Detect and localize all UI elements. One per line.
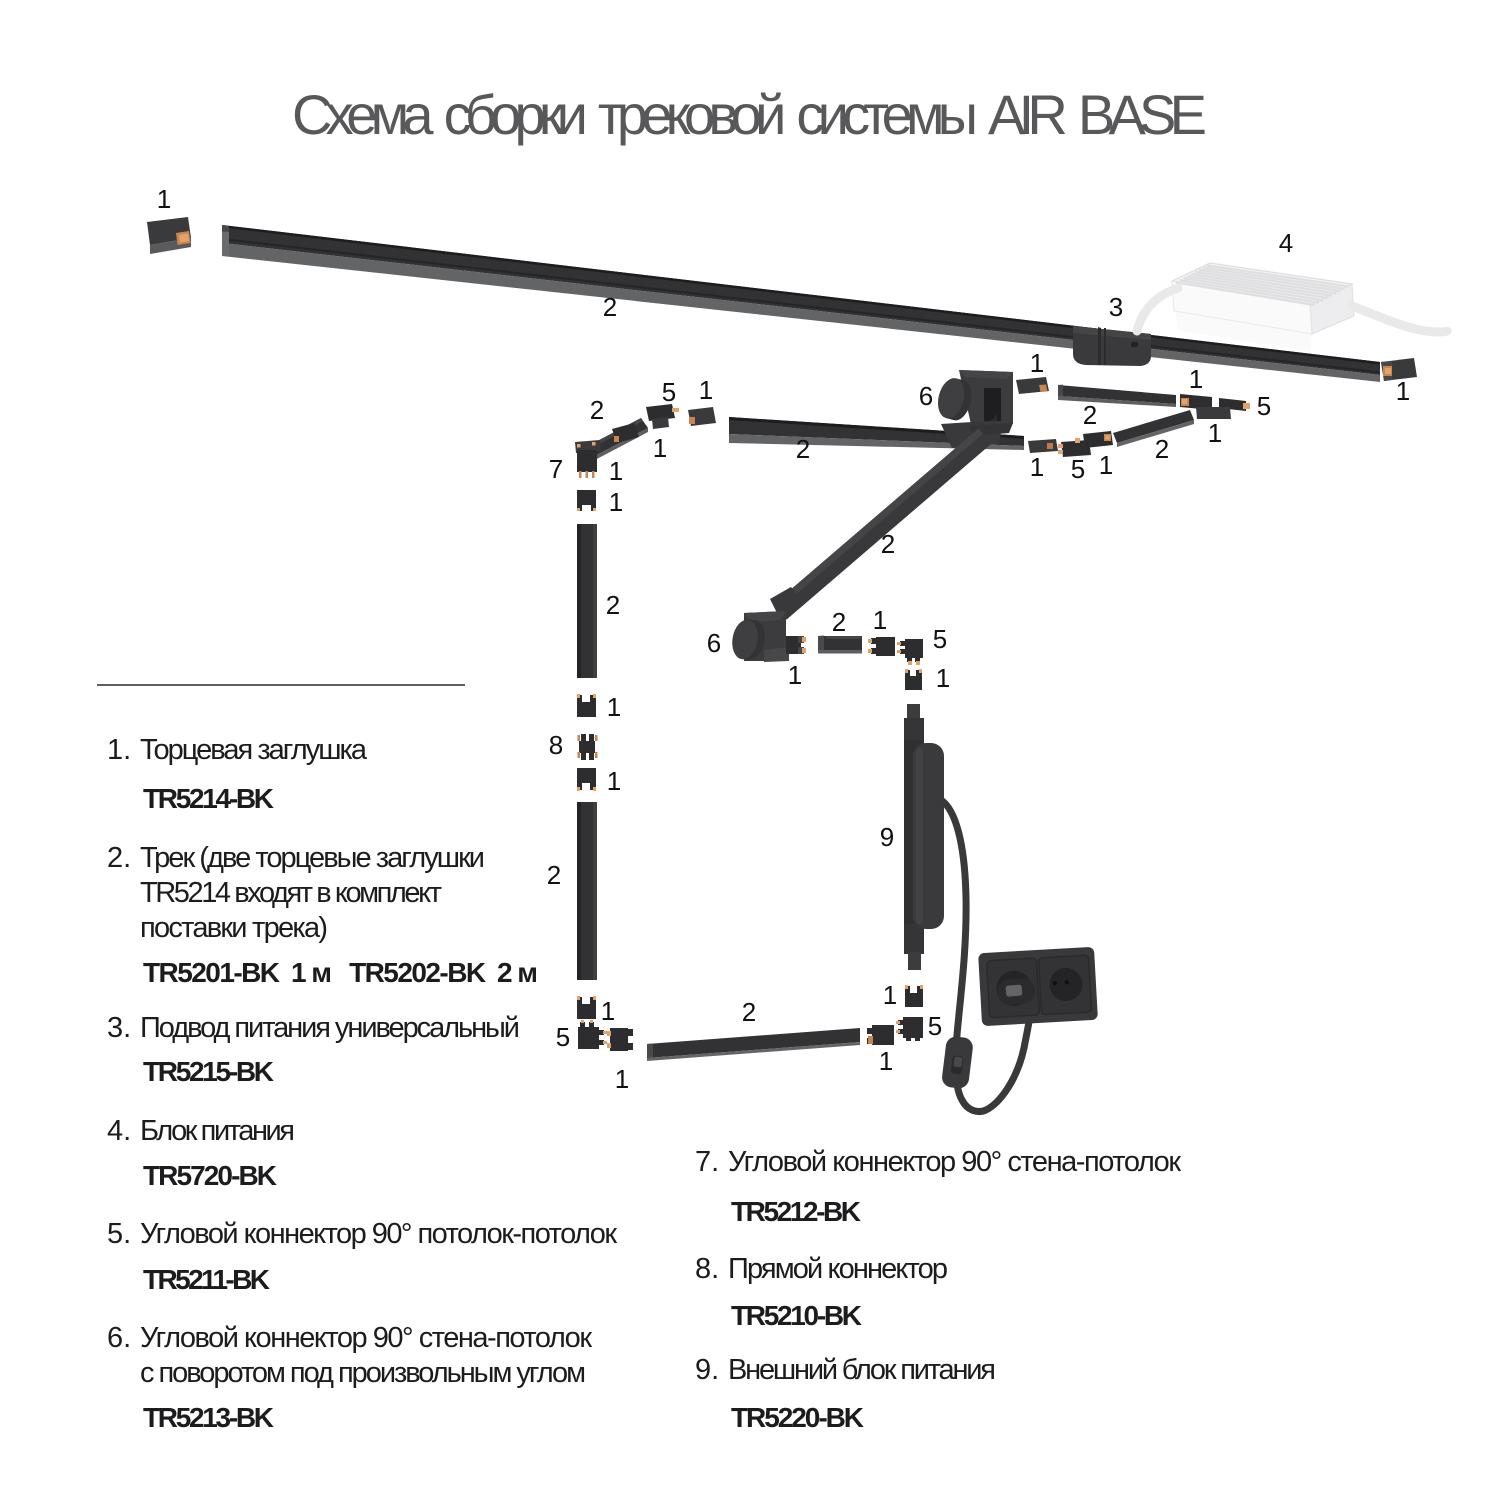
svg-text:2: 2	[603, 292, 617, 322]
svg-text:1: 1	[1099, 450, 1113, 480]
svg-text:Угловой коннектор 90° стена-по: Угловой коннектор 90° стена-потолок	[728, 1146, 1181, 1178]
svg-text:3: 3	[1109, 292, 1123, 322]
svg-text:1: 1	[873, 605, 887, 635]
svg-text:4: 4	[1279, 228, 1293, 258]
svg-text:6.: 6.	[107, 1322, 131, 1354]
svg-text:1: 1	[879, 1046, 893, 1076]
svg-text:TR5210-BK: TR5210-BK	[731, 1300, 862, 1331]
svg-text:5: 5	[556, 1022, 570, 1052]
svg-text:1: 1	[607, 766, 621, 796]
svg-text:1: 1	[1396, 376, 1410, 406]
svg-text:5: 5	[928, 1011, 942, 1041]
svg-text:1: 1	[615, 1064, 629, 1094]
svg-text:Подвод питания универсальный: Подвод питания универсальный	[140, 1012, 520, 1044]
svg-text:с поворотом под произвольным у: с поворотом под произвольным углом	[140, 1357, 586, 1389]
svg-text:TR5201-BK 1 м TR5202-BK 2: TR5201-BK 1 м TR5202-BK 2 м	[143, 957, 538, 988]
svg-text:Прямой коннектор: Прямой коннектор	[728, 1253, 948, 1285]
svg-text:TR5720-BK: TR5720-BK	[143, 1160, 277, 1191]
svg-text:TR5220-BK: TR5220-BK	[731, 1402, 864, 1433]
svg-text:1: 1	[936, 663, 950, 693]
svg-text:TR5212-BK: TR5212-BK	[731, 1196, 861, 1227]
svg-text:Блок питания: Блок питания	[140, 1115, 295, 1147]
svg-text:2: 2	[832, 607, 846, 637]
svg-text:1: 1	[883, 980, 897, 1010]
svg-text:1: 1	[609, 456, 623, 486]
svg-text:1: 1	[157, 184, 171, 214]
svg-text:Торцевая заглушка: Торцевая заглушка	[140, 734, 368, 766]
svg-text:2: 2	[590, 395, 604, 425]
svg-text:2: 2	[796, 434, 810, 464]
svg-text:4.: 4.	[107, 1115, 131, 1147]
svg-text:поставки трека): поставки трека)	[140, 912, 328, 944]
svg-text:5: 5	[933, 624, 947, 654]
svg-text:2: 2	[547, 860, 561, 890]
svg-text:2: 2	[1155, 434, 1169, 464]
svg-text:TR5214 входят в комплект: TR5214 входят в комплект	[140, 877, 442, 909]
svg-text:2.: 2.	[107, 842, 131, 874]
svg-text:1: 1	[653, 433, 667, 463]
svg-text:1: 1	[788, 660, 802, 690]
svg-text:1: 1	[1208, 418, 1222, 448]
svg-text:6: 6	[919, 381, 933, 411]
svg-text:6: 6	[707, 628, 721, 658]
svg-text:1: 1	[1030, 452, 1044, 482]
svg-text:Угловой коннектор 90° потолок-: Угловой коннектор 90° потолок-потолок	[140, 1218, 617, 1250]
svg-text:1: 1	[1189, 364, 1203, 394]
svg-text:2: 2	[881, 529, 895, 559]
svg-text:1: 1	[1030, 348, 1044, 378]
svg-text:8: 8	[549, 730, 563, 760]
svg-text:5: 5	[1257, 391, 1271, 421]
svg-text:2: 2	[742, 997, 756, 1027]
svg-text:1: 1	[607, 692, 621, 722]
svg-text:1: 1	[601, 996, 615, 1026]
svg-text:TR5213-BK: TR5213-BK	[143, 1402, 274, 1433]
svg-text:TR5214-BK: TR5214-BK	[143, 783, 274, 814]
svg-text:3.: 3.	[107, 1012, 131, 1044]
svg-text:9.: 9.	[695, 1354, 719, 1386]
svg-text:Угловой коннектор 90° стена-по: Угловой коннектор 90° стена-потолок	[140, 1322, 592, 1354]
svg-text:5: 5	[1071, 454, 1085, 484]
svg-text:5: 5	[662, 377, 676, 407]
svg-text:1.: 1.	[107, 734, 131, 766]
svg-text:1: 1	[699, 375, 713, 405]
svg-text:7.: 7.	[695, 1146, 719, 1178]
svg-text:7: 7	[549, 454, 563, 484]
svg-text:2: 2	[606, 590, 620, 620]
svg-text:TR5215-BK: TR5215-BK	[143, 1056, 274, 1087]
svg-text:2: 2	[1083, 400, 1097, 430]
svg-text:1: 1	[609, 487, 623, 517]
svg-text:TR5211-BK: TR5211-BK	[143, 1264, 270, 1295]
svg-text:Схема сборки трековой системы: Схема сборки трековой системы AIR BASE	[292, 83, 1207, 146]
svg-text:8.: 8.	[695, 1253, 719, 1285]
svg-text:5.: 5.	[107, 1218, 131, 1250]
svg-text:Трек (две торцевые заглушки: Трек (две торцевые заглушки	[140, 842, 485, 874]
svg-text:9: 9	[880, 822, 894, 852]
svg-text:Внешний блок питания: Внешний блок питания	[728, 1354, 996, 1386]
